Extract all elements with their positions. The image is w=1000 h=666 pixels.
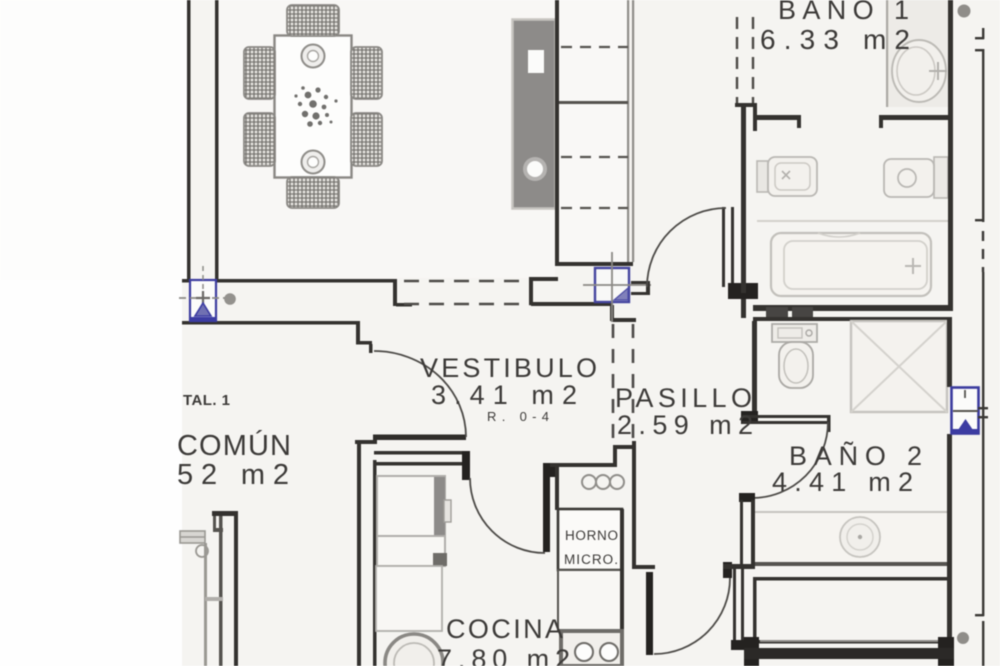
svg-text:VESTIBULO: VESTIBULO (420, 353, 597, 383)
svg-text:PASILLO: PASILLO (615, 383, 752, 413)
svg-text:COMÚN: COMÚN (177, 429, 291, 462)
svg-text:MICRO.: MICRO. (564, 552, 618, 567)
svg-text:COCINA: COCINA (446, 614, 563, 644)
svg-text:HORNO: HORNO (565, 528, 618, 543)
svg-text:TAL. 1: TAL. 1 (183, 392, 230, 409)
